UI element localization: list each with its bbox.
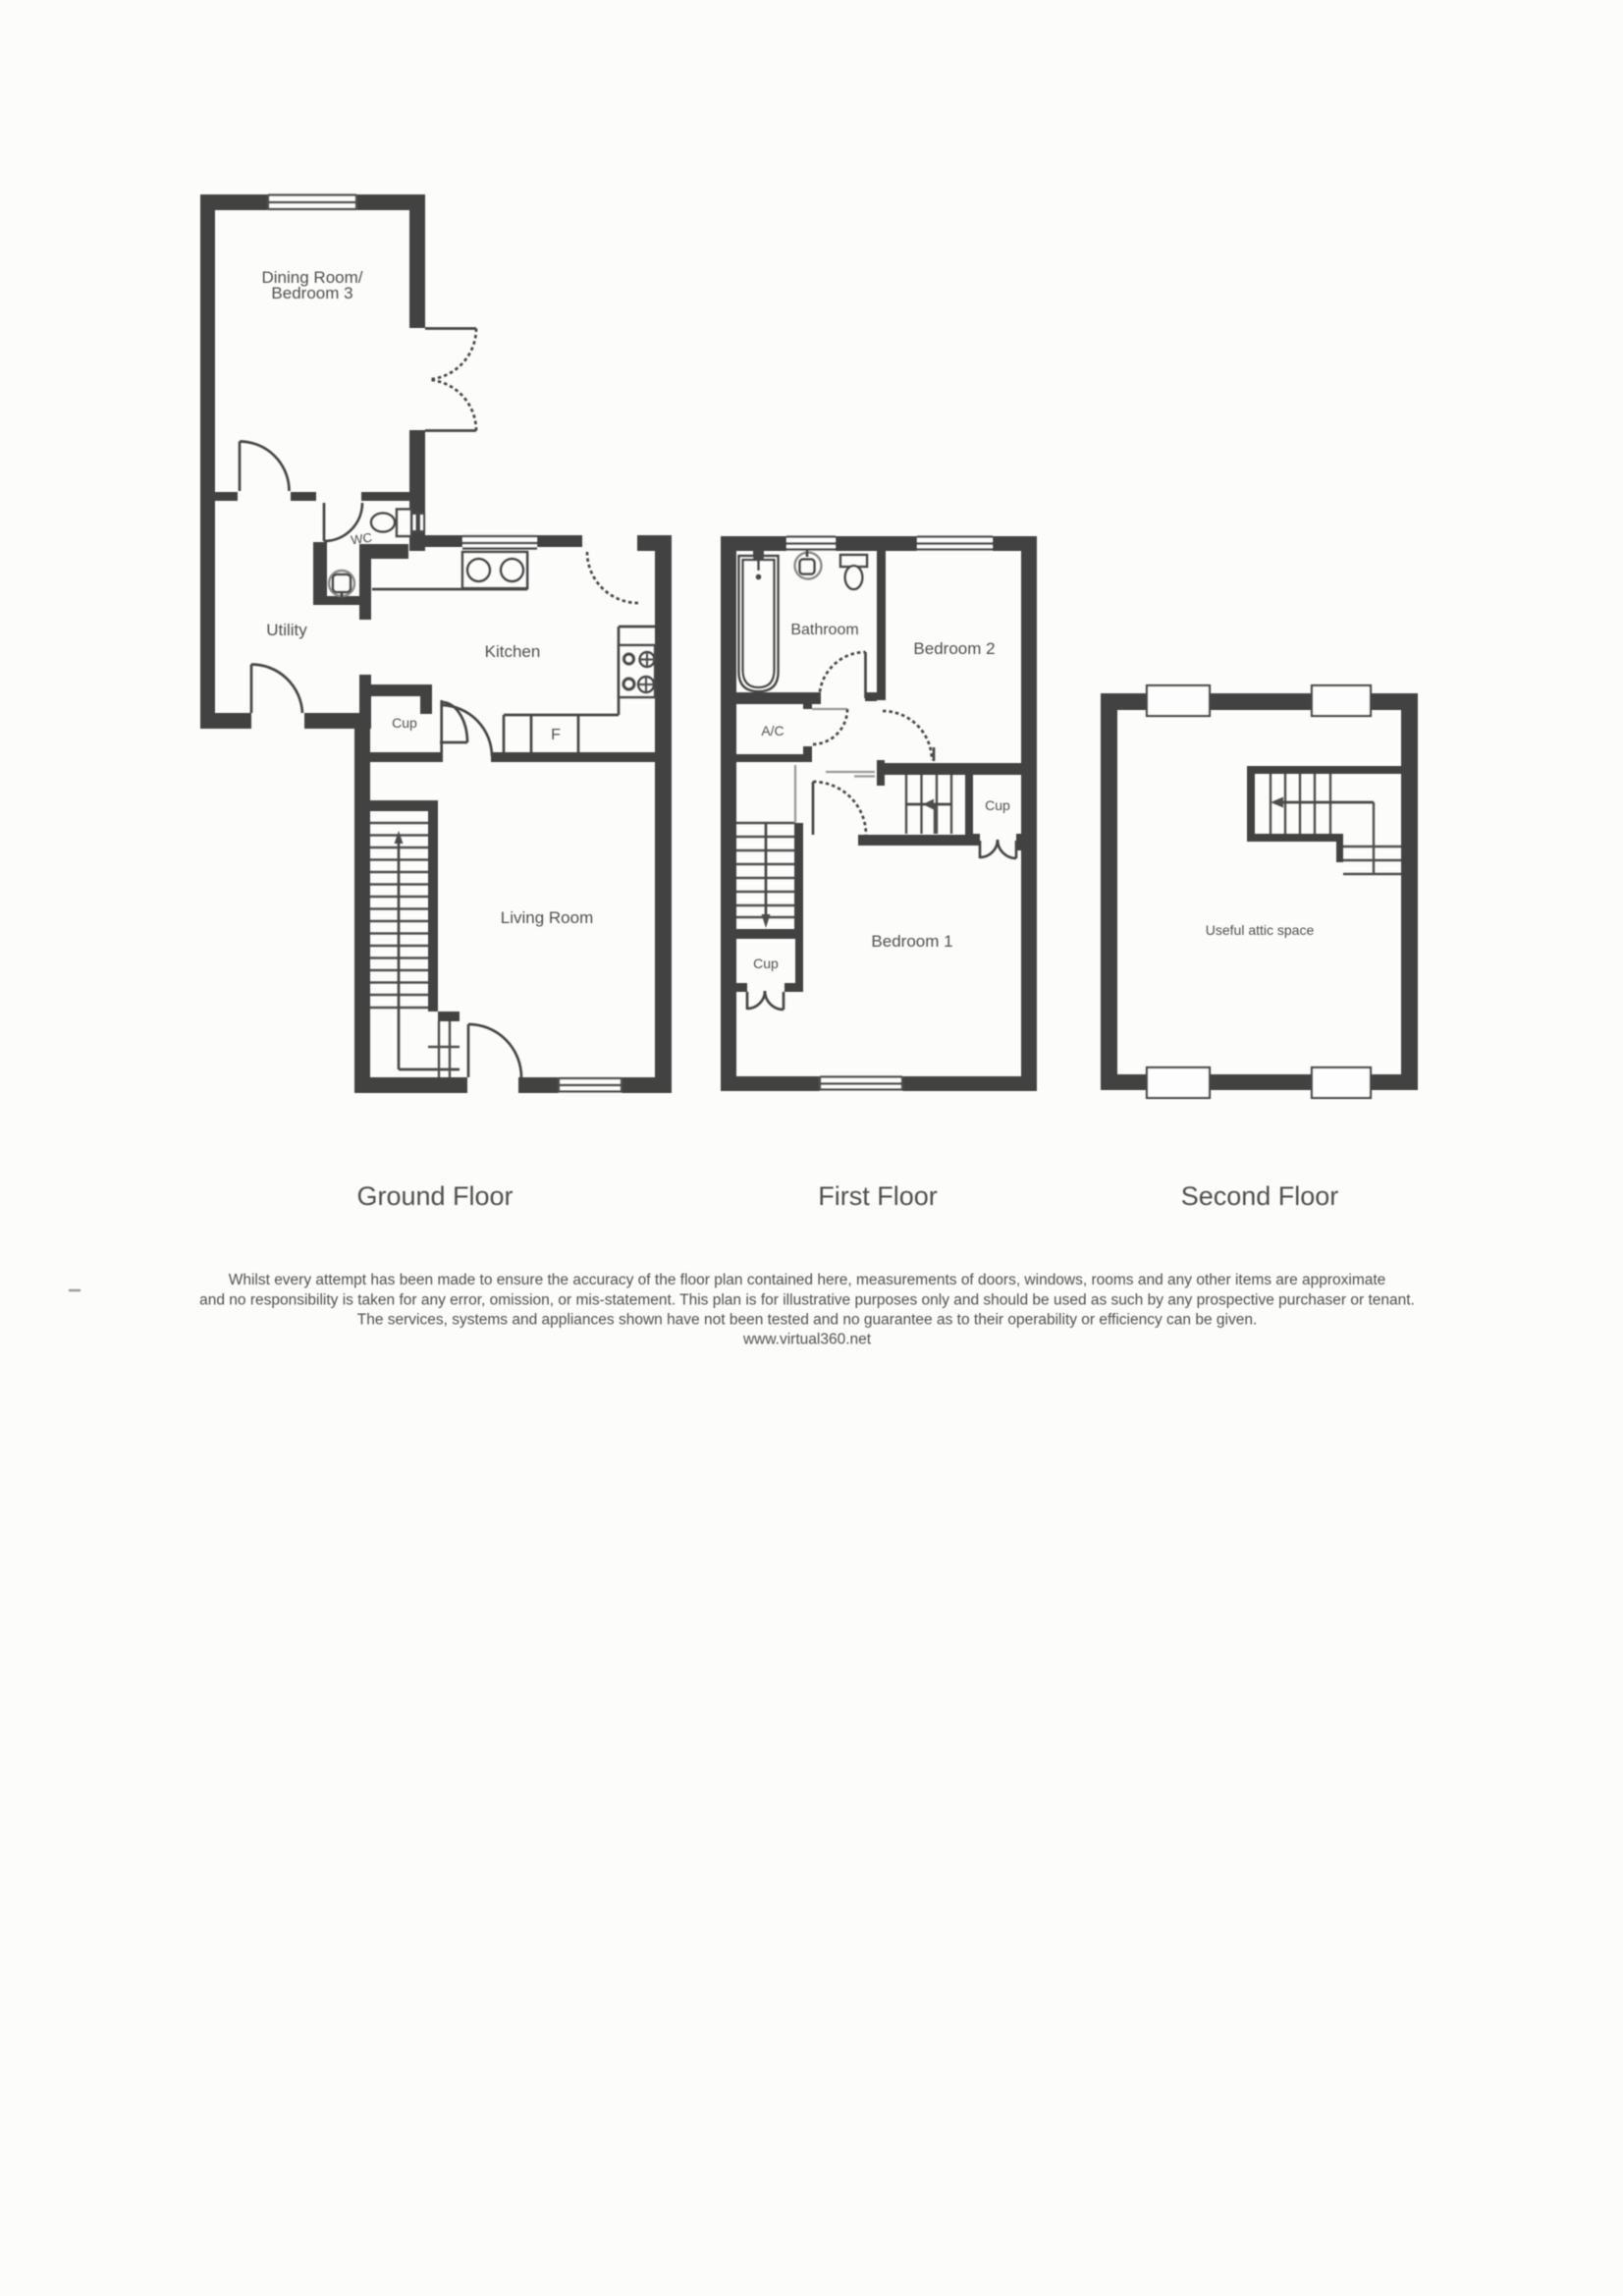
svg-text:First Floor: First Floor <box>818 1181 938 1211</box>
svg-text:Kitchen: Kitchen <box>485 642 541 661</box>
svg-text:and no responsibility is taken: and no responsibility is taken for any e… <box>199 1292 1415 1309</box>
svg-text:Whilst every attempt has been: Whilst every attempt has been made to en… <box>229 1272 1386 1288</box>
svg-text:The services, systems and appl: The services, systems and appliances sho… <box>357 1312 1258 1329</box>
svg-text:Useful attic space: Useful attic space <box>1206 922 1315 938</box>
svg-text:Cup: Cup <box>753 956 779 971</box>
svg-text:www.virtual360.net: www.virtual360.net <box>742 1332 872 1348</box>
svg-text:Bedroom 2: Bedroom 2 <box>913 639 995 658</box>
svg-text:Cup: Cup <box>985 797 1010 813</box>
svg-text:Ground Floor: Ground Floor <box>356 1181 513 1211</box>
svg-text:Bathroom: Bathroom <box>790 622 858 638</box>
svg-text:A/C: A/C <box>761 723 784 738</box>
svg-text:F: F <box>551 727 561 743</box>
svg-text:Cup: Cup <box>392 715 417 731</box>
svg-text:Utility: Utility <box>266 621 307 639</box>
svg-text:Bedroom 3: Bedroom 3 <box>271 284 352 302</box>
svg-text:Second Floor: Second Floor <box>1181 1181 1339 1211</box>
svg-text:Living Room: Living Room <box>501 908 594 927</box>
svg-text:Bedroom 1: Bedroom 1 <box>871 932 952 951</box>
